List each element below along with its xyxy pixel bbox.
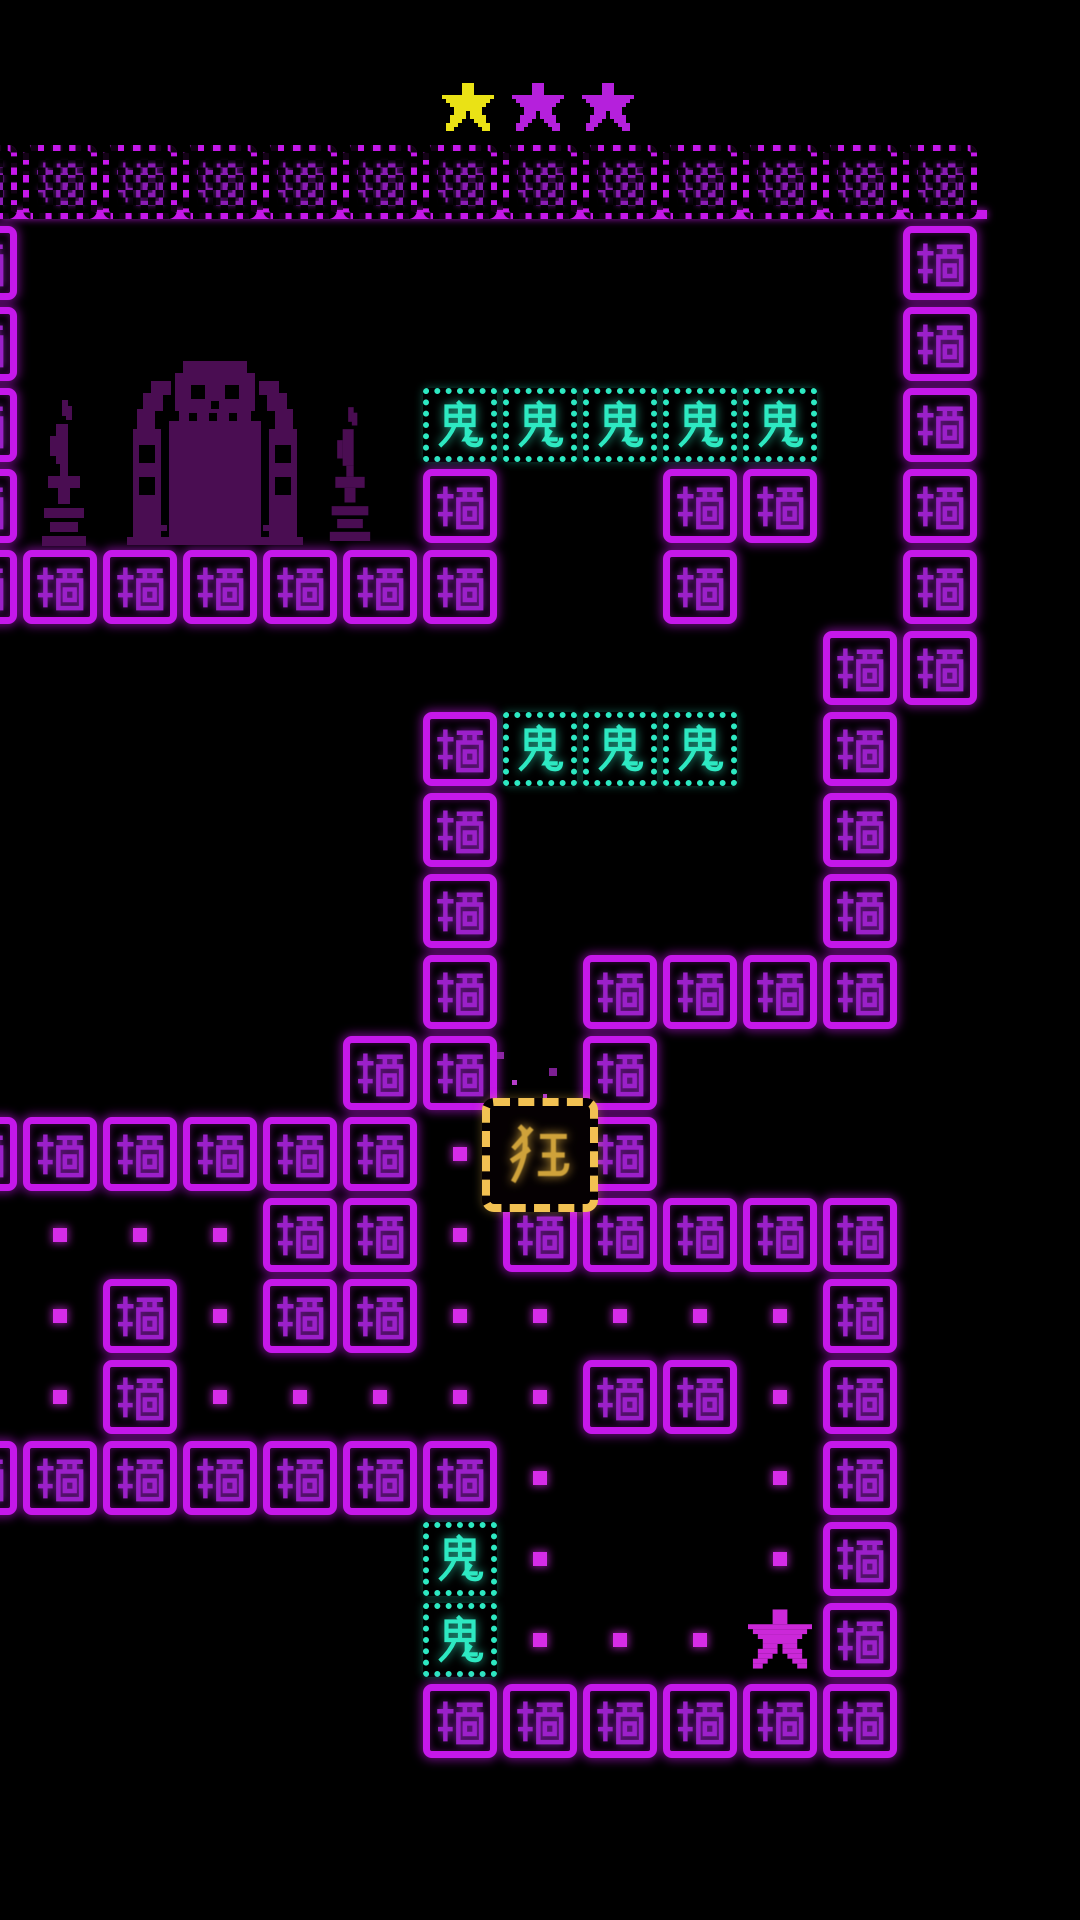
wall-tile: [423, 1684, 497, 1758]
sym-wall-glyph: [434, 885, 486, 937]
wall-tile: [663, 469, 737, 543]
wall-tile: [0, 550, 17, 624]
pellet: [53, 1390, 67, 1404]
sym-wall-glyph: [434, 480, 486, 532]
star-pickup[interactable]: [748, 1609, 812, 1669]
sym-ghost-glyph: [433, 1613, 487, 1667]
sym-wall-glyph: [0, 1452, 6, 1504]
sym-wall-glyph: [194, 1128, 246, 1180]
sym-wall-glyph: [354, 561, 406, 613]
pellet: [533, 1309, 547, 1323]
wall-tile: [903, 469, 977, 543]
wall-tile: [583, 1198, 657, 1272]
wall-tile: [423, 1441, 497, 1515]
sym-wall-glyph: [274, 561, 326, 613]
pellet: [533, 1552, 547, 1566]
wall-tile: [343, 1279, 417, 1353]
wall-tile: [743, 1684, 817, 1758]
pellet: [533, 1390, 547, 1404]
sym-ghost-glyph: [433, 1532, 487, 1586]
sym-wall-glyph: [754, 480, 806, 532]
wall-tile: [823, 955, 897, 1029]
wall-tile: [663, 550, 737, 624]
dust-particle-2: [512, 1080, 517, 1085]
sym-wall-glyph: [834, 804, 886, 856]
sym-wall-glyph: [594, 1128, 646, 1180]
dust-particle-1: [497, 1052, 504, 1059]
sym-ghost-glyph: [673, 722, 727, 776]
hud-star-1: [442, 78, 494, 136]
sym-wall-glyph: [514, 1209, 566, 1261]
wall-tile: [823, 1279, 897, 1353]
sym-wall-glyph: [354, 1047, 406, 1099]
wall-tile: [823, 1603, 897, 1677]
sym-wall-glyph: [594, 1695, 646, 1747]
pellet: [773, 1471, 787, 1485]
sym-wall-glyph: [674, 1695, 726, 1747]
sym-wall-glyph: [434, 1047, 486, 1099]
wall-tile: [903, 388, 977, 462]
sym-wall-glyph: [834, 156, 886, 208]
sym-wall-glyph: [0, 480, 6, 532]
wall-tile-crumbled: [823, 145, 897, 219]
wall-tile: [343, 1198, 417, 1272]
sym-wall-glyph: [0, 561, 6, 613]
sym-wall-glyph: [114, 1128, 166, 1180]
sym-wall-glyph: [514, 156, 566, 208]
wall-tile: [0, 226, 17, 300]
pellet: [453, 1309, 467, 1323]
sym-wall-glyph: [0, 1128, 6, 1180]
wall-tile: [0, 307, 17, 381]
sym-ghost-glyph: [433, 398, 487, 452]
sym-wall-glyph: [34, 561, 86, 613]
wall-tile: [583, 1036, 657, 1110]
hud-star-2: [512, 78, 564, 136]
ghost-tile[interactable]: [503, 388, 577, 462]
wall-tile: [423, 793, 497, 867]
wall-tile: [823, 1198, 897, 1272]
sym-wall-glyph: [274, 1209, 326, 1261]
pellet: [293, 1390, 307, 1404]
sym-wall-glyph: [114, 156, 166, 208]
game-screen: [0, 0, 1080, 1920]
wall-tile: [823, 793, 897, 867]
wall-tile-crumbled: [103, 145, 177, 219]
sym-wall-glyph: [354, 1290, 406, 1342]
wall-tile-crumbled: [23, 145, 97, 219]
sym-wall-glyph: [834, 1614, 886, 1666]
wall-tile: [583, 1360, 657, 1434]
ghost-tile[interactable]: [423, 1603, 497, 1677]
sym-wall-glyph: [434, 156, 486, 208]
sym-wall-glyph: [114, 1371, 166, 1423]
player-tile[interactable]: [482, 1098, 598, 1212]
wall-tile: [663, 1360, 737, 1434]
sym-wall-glyph: [914, 561, 966, 613]
pellet: [453, 1147, 467, 1161]
wall-tile: [0, 1441, 17, 1515]
ghost-tile[interactable]: [423, 388, 497, 462]
wall-tile: [263, 1117, 337, 1191]
sym-star-glyph: [582, 78, 634, 136]
wall-tile-crumbled: [583, 145, 657, 219]
candle-decoration-2: [328, 402, 372, 548]
wall-tile: [423, 712, 497, 786]
sym-wall-glyph: [274, 1128, 326, 1180]
sym-wall-glyph: [914, 480, 966, 532]
sym-wall-glyph: [834, 642, 886, 694]
wall-tile: [663, 955, 737, 1029]
wall-tile: [663, 1684, 737, 1758]
sym-wall-glyph: [354, 1452, 406, 1504]
ghost-tile[interactable]: [503, 712, 577, 786]
sym-wall-glyph: [0, 156, 6, 208]
sym-wall-glyph: [434, 723, 486, 775]
wall-tile: [23, 1441, 97, 1515]
sym-wall-glyph: [34, 156, 86, 208]
wall-tile: [103, 1117, 177, 1191]
wall-tile: [263, 1198, 337, 1272]
ghost-tile[interactable]: [743, 388, 817, 462]
pellet: [693, 1633, 707, 1647]
sym-wall-glyph: [594, 966, 646, 1018]
pellet: [773, 1552, 787, 1566]
wall-tile: [103, 1360, 177, 1434]
sym-wall-glyph: [674, 156, 726, 208]
sym-wall-glyph: [434, 561, 486, 613]
wall-tile: [23, 1117, 97, 1191]
wall-tile-crumbled: [183, 145, 257, 219]
wall-tile-crumbled: [343, 145, 417, 219]
wall-tile: [343, 1117, 417, 1191]
sym-wall-glyph: [594, 1371, 646, 1423]
sym-wall-glyph: [914, 318, 966, 370]
wall-tile: [263, 550, 337, 624]
skull-shrine-decoration: [123, 357, 307, 545]
wall-tile: [743, 1198, 817, 1272]
pellet: [773, 1309, 787, 1323]
sym-wall-glyph: [834, 1695, 886, 1747]
hud-star-3: [582, 78, 634, 136]
sym-wall-glyph: [434, 1452, 486, 1504]
wall-tile: [0, 469, 17, 543]
wall-tile: [423, 469, 497, 543]
wall-tile: [423, 874, 497, 948]
sym-wall-glyph: [594, 1209, 646, 1261]
ghost-tile[interactable]: [583, 388, 657, 462]
sym-wall-glyph: [354, 156, 406, 208]
sym-ghost-glyph: [753, 398, 807, 452]
wall-tile: [823, 631, 897, 705]
wall-tile: [823, 1684, 897, 1758]
sym-ghost-glyph: [593, 398, 647, 452]
sym-wall-glyph: [674, 1209, 726, 1261]
wall-tile: [183, 1441, 257, 1515]
sym-wall-glyph: [834, 1371, 886, 1423]
sym-candle-glyph: [40, 400, 88, 548]
wall-tile: [823, 1522, 897, 1596]
sym-wall-glyph: [114, 1290, 166, 1342]
sym-wall-glyph: [834, 966, 886, 1018]
sym-star-glyph: [512, 78, 564, 136]
sym-wall-glyph: [194, 156, 246, 208]
wall-tile: [823, 1360, 897, 1434]
sym-star-glyph: [442, 78, 494, 136]
sym-wall-glyph: [674, 480, 726, 532]
sym-wall-glyph: [914, 156, 966, 208]
pellet: [133, 1228, 147, 1242]
wall-tile: [263, 1279, 337, 1353]
sym-wall-glyph: [514, 1695, 566, 1747]
dust-particle-4: [543, 1094, 547, 1098]
sym-star-glyph: [748, 1609, 812, 1669]
sym-wall-glyph: [914, 642, 966, 694]
sym-player-glyph: [507, 1122, 573, 1188]
pellet: [613, 1309, 627, 1323]
sym-wall-glyph: [914, 237, 966, 289]
wall-tile-crumbled: [903, 145, 977, 219]
pellet: [773, 1390, 787, 1404]
sym-wall-glyph: [0, 237, 6, 289]
wall-tile: [743, 469, 817, 543]
sym-wall-glyph: [34, 1128, 86, 1180]
sym-wall-glyph: [594, 1047, 646, 1099]
pellet: [213, 1228, 227, 1242]
sym-wall-glyph: [834, 1290, 886, 1342]
wall-tile-crumbled: [263, 145, 337, 219]
ghost-tile[interactable]: [663, 388, 737, 462]
sym-ghost-glyph: [513, 722, 567, 776]
pellet: [613, 1633, 627, 1647]
sym-candle-glyph: [328, 402, 372, 548]
sym-wall-glyph: [834, 1209, 886, 1261]
wall-tile: [183, 550, 257, 624]
wall-tile-crumbled: [0, 145, 17, 219]
wall-tile: [183, 1117, 257, 1191]
dust-particle-3: [549, 1068, 557, 1076]
wall-tile: [343, 1441, 417, 1515]
sym-ghost-glyph: [593, 722, 647, 776]
wall-tile: [263, 1441, 337, 1515]
sym-wall-glyph: [674, 966, 726, 1018]
sym-wall-glyph: [0, 318, 6, 370]
wall-tile: [743, 955, 817, 1029]
sym-wall-glyph: [754, 1695, 806, 1747]
wall-tile: [103, 1279, 177, 1353]
pellet: [693, 1309, 707, 1323]
pellet: [373, 1390, 387, 1404]
wall-tile: [103, 550, 177, 624]
wall-tile: [103, 1441, 177, 1515]
sym-wall-glyph: [434, 804, 486, 856]
sym-wall-glyph: [594, 156, 646, 208]
sym-wall-glyph: [674, 561, 726, 613]
wall-tile: [823, 1441, 897, 1515]
wall-tile: [503, 1684, 577, 1758]
pellet: [213, 1390, 227, 1404]
sym-wall-glyph: [194, 561, 246, 613]
ghost-tile[interactable]: [583, 712, 657, 786]
sym-wall-glyph: [754, 1209, 806, 1261]
wall-tile: [583, 1684, 657, 1758]
wall-tile: [903, 307, 977, 381]
sym-wall-glyph: [914, 399, 966, 451]
wall-tile: [0, 388, 17, 462]
wall-tile: [0, 1117, 17, 1191]
pellet: [533, 1633, 547, 1647]
wall-tile: [423, 550, 497, 624]
wall-tile-crumbled: [663, 145, 737, 219]
pellet: [213, 1309, 227, 1323]
sym-wall-glyph: [834, 1452, 886, 1504]
sym-wall-glyph: [114, 1452, 166, 1504]
wall-tile: [423, 955, 497, 1029]
wall-tile: [583, 955, 657, 1029]
pellet: [53, 1309, 67, 1323]
wall-tile: [343, 550, 417, 624]
pellet: [453, 1228, 467, 1242]
sym-wall-glyph: [274, 1290, 326, 1342]
sym-wall-glyph: [274, 1452, 326, 1504]
wall-tile: [23, 550, 97, 624]
sym-ghost-glyph: [673, 398, 727, 452]
sym-shrine-glyph: [123, 357, 307, 545]
sym-wall-glyph: [434, 1695, 486, 1747]
wall-tile-crumbled: [423, 145, 497, 219]
ghost-tile[interactable]: [663, 712, 737, 786]
wall-tile: [423, 1036, 497, 1110]
ghost-tile[interactable]: [423, 1522, 497, 1596]
sym-wall-glyph: [0, 399, 6, 451]
wall-tile: [663, 1198, 737, 1272]
candle-decoration-1: [40, 400, 88, 548]
pellet: [453, 1390, 467, 1404]
sym-wall-glyph: [34, 1452, 86, 1504]
sym-wall-glyph: [354, 1128, 406, 1180]
sym-wall-glyph: [274, 156, 326, 208]
sym-ghost-glyph: [513, 398, 567, 452]
pellet: [533, 1471, 547, 1485]
wall-tile: [903, 631, 977, 705]
sym-wall-glyph: [354, 1209, 406, 1261]
sym-wall-glyph: [754, 966, 806, 1018]
sym-wall-glyph: [754, 156, 806, 208]
pellet: [53, 1228, 67, 1242]
wall-tile: [903, 550, 977, 624]
wall-tile: [903, 226, 977, 300]
wall-tile: [823, 874, 897, 948]
sym-wall-glyph: [434, 966, 486, 1018]
sym-wall-glyph: [114, 561, 166, 613]
sym-wall-glyph: [834, 885, 886, 937]
sym-wall-glyph: [834, 1533, 886, 1585]
wall-tile-crumbled: [743, 145, 817, 219]
wall-tile: [823, 712, 897, 786]
sym-wall-glyph: [834, 723, 886, 775]
wall-tile: [343, 1036, 417, 1110]
sym-wall-glyph: [194, 1452, 246, 1504]
sym-wall-glyph: [674, 1371, 726, 1423]
wall-tile-crumbled: [503, 145, 577, 219]
